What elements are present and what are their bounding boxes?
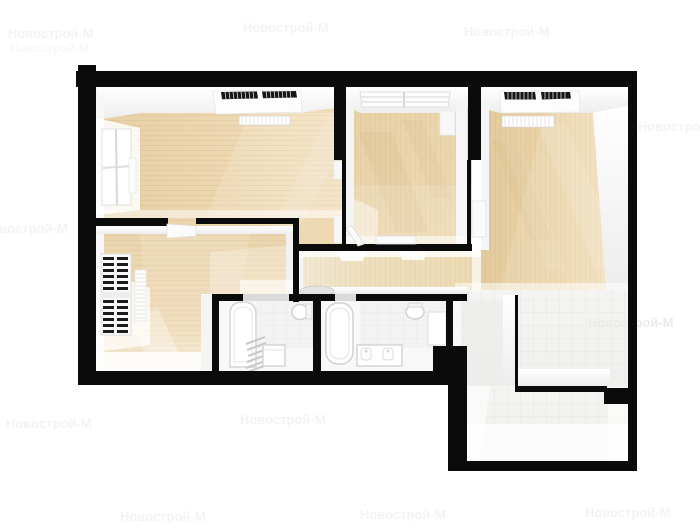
svg-text:Новострой-М: Новострой-М: [243, 20, 329, 35]
svg-text:Новострой-М: Новострой-М: [8, 26, 94, 41]
svg-text:Новострой-М: Новострой-М: [10, 41, 89, 55]
svg-text:Новострой-М: Новострой-М: [240, 412, 326, 427]
svg-text:Новострой-М: Новострой-М: [6, 416, 92, 431]
svg-text:Новострой-М: Новострой-М: [0, 221, 68, 236]
svg-text:Новострой-М: Новострой-М: [464, 24, 550, 39]
svg-text:Новострой-М: Новострой-М: [638, 119, 700, 134]
svg-text:Новострой-М: Новострой-М: [585, 505, 671, 520]
svg-text:Новострой-М: Новострой-М: [120, 509, 206, 524]
svg-text:Новострой-М: Новострой-М: [360, 507, 446, 522]
